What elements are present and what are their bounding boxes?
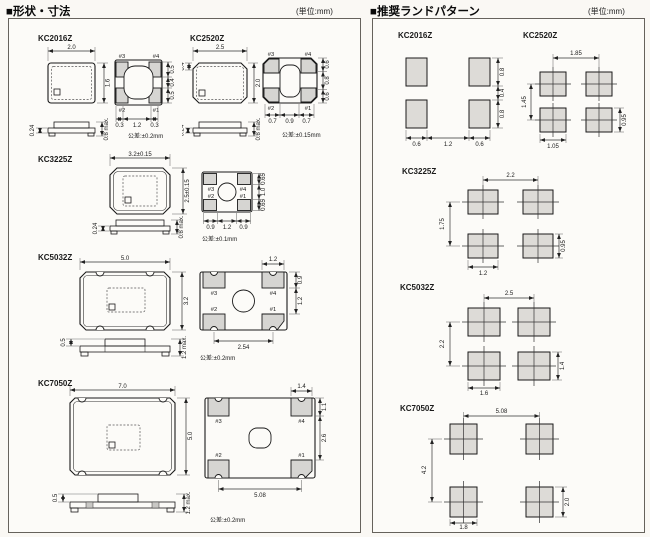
svg-text:1.8: 1.8	[459, 525, 468, 530]
svg-text:1.2: 1.2	[444, 142, 453, 148]
dim-pad-thickness: 0.24	[30, 124, 36, 136]
svg-text:#4: #4	[240, 187, 247, 193]
svg-text:#1: #1	[305, 106, 311, 112]
land-label: KC2520Z	[523, 31, 557, 40]
kc2016z-side-view: 0.24 0.8 max.	[30, 117, 110, 140]
svg-text:0.6: 0.6	[475, 142, 484, 148]
kc5032z-top-dimensions: 5.0 3.2	[80, 256, 190, 330]
kc2520z-land-pattern: KC2520Z 1.85 1.45 1.05 0.95	[515, 26, 641, 150]
land-pads	[462, 185, 559, 263]
dim-chamfer: 0.4	[182, 62, 186, 71]
svg-text:1.2 max.: 1.2 max.	[182, 336, 188, 359]
center-cavity	[233, 290, 255, 312]
svg-text:0.7: 0.7	[302, 119, 311, 125]
svg-text:#2: #2	[268, 106, 274, 112]
kc3225z-bottom-view: #3 #4 #2 #1	[202, 172, 252, 212]
svg-text:0.95: 0.95	[622, 114, 628, 126]
svg-text:0.9: 0.9	[206, 225, 215, 231]
kc3225z-dimension-drawing: KC3225Z 3.2±0.15 2.5±0.15 #3 #4 #2 #1	[10, 148, 300, 246]
svg-text:0.6: 0.6	[325, 92, 331, 101]
pad-1	[238, 200, 251, 211]
svg-text:1.4: 1.4	[297, 384, 306, 390]
kc5032z-top-view	[80, 272, 170, 330]
svg-text:0.8: 0.8	[500, 109, 506, 118]
kc2520z-side-view: 0.24 0.8 max.	[182, 117, 262, 140]
svg-text:#2: #2	[208, 194, 214, 200]
kc2520z-top-view	[193, 63, 247, 103]
svg-text:#1: #1	[298, 453, 304, 459]
svg-text:0.8: 0.8	[325, 76, 331, 85]
svg-text:0.3: 0.3	[150, 123, 159, 129]
land-unit-note: (単位:mm)	[588, 6, 625, 17]
land-dimensions: 1.85 1.45 1.05 0.95	[522, 51, 628, 150]
svg-text:#4: #4	[298, 419, 305, 425]
svg-text:1.2: 1.2	[479, 271, 488, 277]
land-pads	[406, 58, 490, 128]
svg-text:1.05: 1.05	[547, 144, 559, 150]
svg-text:0.9: 0.9	[298, 275, 304, 284]
svg-text:0.24: 0.24	[182, 124, 186, 136]
kc3225z-land-pattern: KC3225Z 2.2 1.75 1.2 0.95	[390, 160, 602, 278]
kc5032z-side-view: 0.5 1.2 max.	[61, 336, 188, 359]
svg-text:2.5±0.15: 2.5±0.15	[185, 179, 191, 203]
svg-text:1.6: 1.6	[480, 391, 489, 396]
pad3-label: #3	[119, 54, 125, 60]
kc7050z-bottom-view: #3 #4 #2 #1	[205, 398, 315, 478]
tolerance-note: 公差:±0.1mm	[202, 235, 237, 243]
svg-text:5.0: 5.0	[188, 431, 194, 440]
svg-text:1.1: 1.1	[322, 402, 328, 411]
tolerance-note: 公差:±0.2mm	[128, 132, 163, 140]
svg-text:0.24: 0.24	[93, 222, 99, 234]
svg-text:0.9: 0.9	[285, 119, 294, 125]
land-section-title: ■推奨ランドパターン	[370, 3, 480, 19]
land-label: KC2016Z	[398, 31, 432, 40]
svg-text:0.5: 0.5	[170, 65, 176, 74]
package-label: KC3225Z	[38, 155, 72, 164]
svg-text:0.8 max.: 0.8 max.	[179, 215, 185, 238]
svg-text:1.4: 1.4	[560, 361, 566, 370]
svg-text:0.8: 0.8	[500, 67, 506, 76]
svg-text:#3: #3	[215, 419, 221, 425]
svg-text:5.0: 5.0	[121, 256, 130, 262]
svg-text:0.9: 0.9	[239, 225, 248, 231]
kc3225z-top-view	[110, 168, 170, 214]
package-label: KC7050Z	[38, 379, 72, 388]
tolerance-note: 公差:±0.2mm	[210, 516, 245, 524]
land-pads	[462, 302, 556, 386]
package-label: KC5032Z	[38, 253, 72, 262]
package-label: KC2016Z	[38, 34, 72, 43]
center-cavity	[218, 183, 236, 201]
kc3225z-top-dimensions: 3.2±0.15 2.5±0.15	[110, 152, 191, 214]
svg-text:0.4: 0.4	[500, 88, 506, 97]
svg-text:#2: #2	[215, 453, 221, 459]
svg-text:0.5: 0.5	[61, 338, 67, 347]
land-dimensions: 2.2 1.75 1.2 0.95	[440, 173, 567, 277]
svg-text:1.0: 1.0	[261, 187, 267, 196]
kc5032z-bottom-view: #3 #4 #2 #1	[200, 272, 287, 330]
svg-text:2.2: 2.2	[440, 339, 446, 348]
shapes-unit-note: (単位:mm)	[296, 6, 333, 17]
svg-text:0.95: 0.95	[561, 240, 567, 252]
pad4-label: #4	[153, 54, 160, 60]
pad-4	[238, 174, 251, 185]
kc5032z-dimension-drawing: KC5032Z 5.0 3.2 #3 #4	[10, 248, 310, 374]
svg-text:2.5: 2.5	[505, 291, 514, 297]
svg-text:0.65: 0.65	[261, 199, 267, 211]
tolerance-note: 公差:±0.15mm	[282, 131, 321, 139]
svg-text:1.2: 1.2	[133, 123, 142, 129]
kc2520z-dimension-drawing: KC2520Z 2.5 0.4 2.0 #3 #4 #2	[182, 30, 360, 142]
svg-text:1.2: 1.2	[223, 225, 232, 231]
svg-text:1.2: 1.2	[298, 296, 304, 305]
svg-text:0.3: 0.3	[115, 123, 124, 129]
svg-text:0.65: 0.65	[261, 173, 267, 185]
kc3225z-side-view: 0.24 0.8 max.	[93, 215, 185, 238]
svg-text:3.2±0.15: 3.2±0.15	[128, 152, 152, 158]
svg-text:#1: #1	[240, 194, 246, 200]
shapes-section-title: ■形状・寸法	[6, 3, 70, 19]
kc2520z-bottom-view: #3 #4 #2 #1	[263, 52, 317, 112]
land-pads	[444, 418, 559, 523]
land-pads	[535, 67, 617, 137]
svg-text:0.4: 0.4	[170, 78, 176, 87]
svg-text:5.08: 5.08	[496, 409, 508, 415]
kc7050z-top-view	[70, 398, 175, 475]
svg-text:7.0: 7.0	[118, 384, 127, 390]
svg-text:0.6: 0.6	[412, 142, 421, 148]
svg-text:2.54: 2.54	[238, 345, 250, 351]
svg-text:#3: #3	[211, 291, 217, 297]
svg-text:#2: #2	[211, 307, 217, 313]
pad-2	[204, 200, 217, 211]
svg-text:0.8 max.: 0.8 max.	[256, 117, 262, 140]
svg-text:1.45: 1.45	[522, 96, 528, 108]
dim-top-width: 2.0	[67, 45, 76, 51]
land-label: KC3225Z	[402, 167, 436, 176]
dim-height-max: 0.8 max.	[104, 117, 110, 140]
kc2016z-land-pattern: KC2016Z 0.8 0.4 0.8 0.6 1.2 0.6	[380, 26, 512, 148]
svg-text:0.5: 0.5	[53, 493, 59, 502]
svg-text:#3: #3	[268, 52, 274, 58]
land-label: KC5032Z	[400, 283, 434, 292]
svg-text:2.6: 2.6	[322, 433, 328, 442]
kc5032z-bottom-dimensions: 1.2 0.9 1.2 2.54	[214, 257, 304, 351]
datasheet-page: ■形状・寸法 (単位:mm) ■推奨ランドパターン (単位:mm) KC2016…	[0, 0, 650, 537]
svg-text:#3: #3	[208, 187, 214, 193]
svg-text:0.7: 0.7	[268, 119, 277, 125]
svg-text:1.2: 1.2	[269, 257, 278, 263]
kc2016z-top-view	[48, 63, 95, 103]
package-label: KC2520Z	[190, 34, 224, 43]
center-cavity	[249, 428, 271, 448]
kc2016z-top-dimensions: 2.0 1.6	[48, 45, 112, 103]
svg-text:5.08: 5.08	[254, 493, 266, 499]
svg-text:1.85: 1.85	[570, 51, 582, 57]
kc2016z-bottom-view: #3 #4 #2 #1	[115, 54, 162, 114]
kc2520z-top-dimensions: 2.5 0.4 2.0	[182, 45, 262, 103]
svg-text:4.2: 4.2	[422, 465, 428, 474]
kc5032z-land-pattern: KC5032Z 2.5 2.2 1.6 1.4	[390, 278, 602, 396]
svg-text:2.0: 2.0	[565, 497, 571, 506]
land-label: KC7050Z	[400, 404, 434, 413]
kc7050z-side-view: 0.5 1.2 max.	[53, 491, 192, 514]
kc7050z-land-pattern: KC7050Z 5.08 4.2 1.8 2.0	[390, 400, 608, 530]
pad2-label: #2	[119, 108, 125, 114]
center-cavity	[124, 66, 153, 99]
svg-text:2.2: 2.2	[506, 173, 515, 179]
kc7050z-dimension-drawing: KC7050Z 7.0 5.0 #3 #4	[10, 376, 332, 528]
svg-text:1.2 max.: 1.2 max.	[186, 491, 192, 514]
tolerance-note: 公差:±0.2mm	[200, 354, 235, 362]
svg-text:2.5: 2.5	[216, 45, 225, 51]
svg-text:0.6: 0.6	[325, 60, 331, 69]
svg-text:0.5: 0.5	[170, 91, 176, 100]
svg-text:#1: #1	[270, 307, 276, 313]
center-cavity	[280, 65, 300, 97]
svg-text:2.0: 2.0	[256, 78, 262, 87]
svg-text:#4: #4	[270, 291, 277, 297]
pad-3	[204, 174, 217, 185]
dim-top-height: 1.6	[106, 78, 112, 87]
svg-text:3.2: 3.2	[184, 296, 190, 305]
kc2016z-dimension-drawing: KC2016Z 2.0 1.6 #3 #4 #2 #1	[10, 30, 180, 142]
svg-text:1.75: 1.75	[440, 218, 446, 230]
svg-text:#4: #4	[305, 52, 312, 58]
